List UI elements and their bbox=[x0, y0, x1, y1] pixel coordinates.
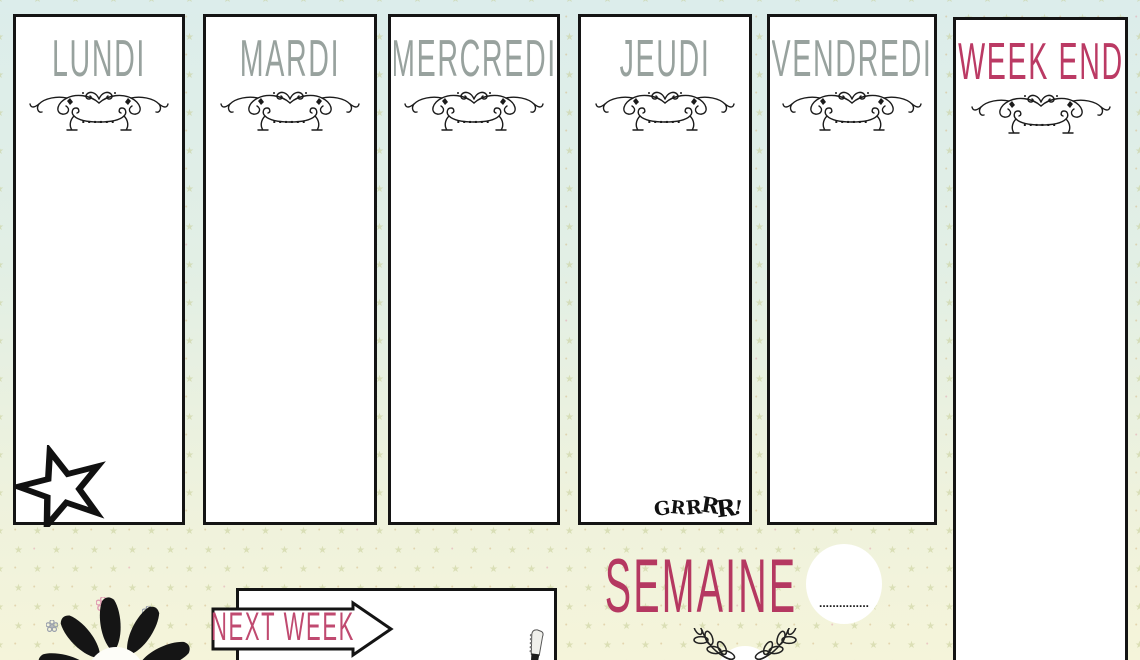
day-title-text: LUNDI bbox=[52, 30, 146, 87]
day-title-text: VENDREDI bbox=[772, 30, 932, 87]
laurel-right-icon bbox=[744, 628, 814, 660]
date-dots: ...... bbox=[971, 113, 1111, 129]
flourish-ornament-icon: ...... bbox=[782, 88, 922, 134]
next-week-label: NEXT WEEK bbox=[211, 604, 355, 649]
day-notes-area bbox=[212, 137, 368, 516]
day-column-vendredi: VENDREDI ...... bbox=[767, 14, 937, 525]
day-notes-area bbox=[776, 137, 928, 516]
guitar-icon bbox=[524, 629, 550, 660]
flower-icon bbox=[36, 590, 201, 660]
date-dots: ...... bbox=[595, 110, 735, 126]
semaine-title: SEMAINE bbox=[606, 548, 796, 622]
day-title-jeudi: JEUDI bbox=[585, 30, 745, 88]
flourish-ornament-icon: ...... bbox=[595, 88, 735, 134]
day-notes-area bbox=[397, 137, 551, 516]
weekly-planner-page: ★•★•★•★•★•★•★•★•★•★•★•★•★•★•★•★•★•★•★•★•… bbox=[0, 0, 1140, 660]
next-week-arrow-banner: NEXT WEEK bbox=[210, 600, 396, 658]
flourish-ornament-icon: ...... bbox=[220, 88, 360, 134]
date-dots: ...... bbox=[220, 110, 360, 126]
grrrr-note: GRRRR! bbox=[654, 497, 742, 519]
day-title-text: JEUDI bbox=[620, 30, 711, 87]
day-title-text: MARDI bbox=[240, 30, 340, 87]
flourish-ornament-icon: ...... bbox=[29, 88, 169, 134]
day-title-mardi: MARDI bbox=[210, 30, 370, 88]
date-dots: ...... bbox=[404, 110, 544, 126]
day-title-mercredi: MERCREDI bbox=[394, 30, 554, 88]
semaine-label: SEMAINE bbox=[606, 548, 796, 622]
day-column-weekend: WEEK END ...... bbox=[953, 17, 1128, 660]
star-icon bbox=[15, 445, 107, 527]
flourish-ornament-icon: ...... bbox=[404, 88, 544, 134]
date-dots: ...... bbox=[782, 110, 922, 126]
week-number-badge: ............... bbox=[806, 544, 882, 624]
week-number-dots: ............... bbox=[806, 596, 882, 610]
day-title-vendredi: VENDREDI bbox=[772, 30, 932, 88]
laurel-left-icon bbox=[676, 628, 746, 660]
day-notes-area bbox=[587, 137, 743, 516]
day-column-lundi: LUNDI ...... bbox=[13, 14, 185, 525]
day-title-text: WEEK END bbox=[958, 33, 1124, 90]
flourish-ornament-icon: ...... bbox=[971, 91, 1111, 137]
day-column-jeudi: JEUDI ...... GRRRR! bbox=[578, 14, 752, 525]
date-dots: ...... bbox=[29, 110, 169, 126]
day-column-mercredi: MERCREDI ...... bbox=[388, 14, 560, 525]
day-notes-area bbox=[962, 140, 1119, 656]
day-title-text: MERCREDI bbox=[394, 30, 554, 87]
day-column-mardi: MARDI ...... bbox=[203, 14, 377, 525]
day-title-lundi: LUNDI bbox=[19, 30, 179, 88]
day-title-weekend: WEEK END bbox=[957, 33, 1125, 91]
